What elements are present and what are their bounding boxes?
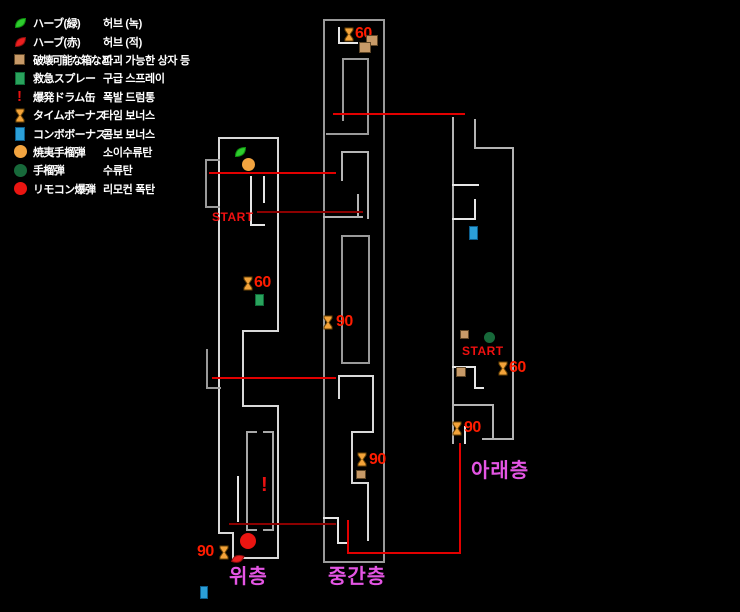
legend-item: 焼夷手榴弾 소이수류탄	[14, 143, 190, 161]
upper-floor-inner-room	[247, 432, 273, 530]
combo-bonus-icon	[200, 586, 208, 599]
legend-jp: ハーブ(赤)	[33, 34, 103, 50]
time-bonus-value: 60	[509, 360, 526, 376]
floor-label-middle: 중간층	[328, 567, 386, 587]
legend-kr: 폭발 드럼통	[103, 89, 155, 105]
legend-kr: 콤보 보너스	[103, 126, 155, 142]
middle-floor-outline	[324, 20, 384, 562]
first-aid-spray-icon	[255, 294, 264, 306]
time-bonus-icon	[243, 276, 253, 296]
breakable-box-icon	[14, 54, 33, 65]
incendiary-grenade-icon	[242, 158, 255, 171]
legend-item: コンボボーナス 콤보 보너스	[14, 124, 190, 142]
legend-jp: 爆発ドラム缶	[33, 89, 103, 105]
red-herb-icon	[14, 36, 33, 48]
legend-jp: コンボボーナス	[33, 126, 103, 142]
legend-kr: 파괴 가능한 상자 등	[103, 52, 190, 68]
start-label-lower: START	[462, 345, 504, 357]
legend-item: 破壊可能な箱など 파괴 가능한 상자 등	[14, 51, 190, 69]
legend-item: 救急スプレー 구급 스프레이	[14, 69, 190, 87]
remote-bomb-icon	[240, 533, 256, 549]
time-bonus-icon	[498, 361, 508, 381]
legend: ハーブ(緑) 허브 (녹) ハーブ(赤) 허브 (적) 破壊可能な箱など 파괴 …	[14, 14, 190, 198]
legend-item: リモコン爆弾 리모컨 폭탄	[14, 180, 190, 198]
explosive-drum-icon: !	[14, 89, 33, 104]
time-bonus-icon	[344, 27, 354, 47]
start-label-upper: START	[212, 211, 254, 223]
time-bonus-value: 90	[336, 314, 353, 330]
lower-floor-outline	[453, 120, 513, 439]
middle-floor-exit-passage	[324, 518, 348, 543]
middle-floor-room-b	[324, 152, 368, 218]
legend-kr: 허브 (적)	[103, 34, 142, 50]
incendiary-grenade-icon	[14, 145, 33, 158]
time-bonus-icon	[219, 545, 229, 565]
legend-kr: 타임 보너스	[103, 107, 155, 123]
green-herb-icon	[14, 17, 33, 29]
grenade-icon	[484, 332, 495, 343]
breakable-box-icon	[356, 470, 366, 479]
time-bonus-value: 90	[197, 544, 214, 560]
legend-jp: ハーブ(緑)	[33, 15, 103, 31]
legend-item: タイムボーナス 타임 보너스	[14, 106, 190, 124]
middle-floor-room-d	[339, 376, 373, 540]
legend-jp: リモコン爆弾	[33, 181, 103, 197]
legend-jp: 破壊可能な箱など	[33, 52, 103, 68]
upper-floor-alcove-top	[206, 160, 219, 207]
grenade-icon	[14, 164, 33, 177]
time-bonus-value: 60	[254, 275, 271, 291]
mercenaries-map-guide: ハーブ(緑) 허브 (녹) ハーブ(赤) 허브 (적) 破壊可能な箱など 파괴 …	[0, 0, 740, 612]
middle-floor-room-c	[342, 236, 369, 363]
legend-jp: 救急スプレー	[33, 70, 103, 86]
breakable-box-icon	[456, 367, 466, 377]
legend-kr: 허브 (녹)	[103, 15, 142, 31]
breakable-box-icon	[460, 330, 469, 339]
legend-kr: 구급 스프레이	[103, 70, 165, 86]
breakable-box-icon	[359, 42, 371, 53]
time-bonus-icon	[357, 452, 367, 472]
legend-item: ハーブ(赤) 허브 (적)	[14, 32, 190, 50]
combo-bonus-icon	[469, 226, 478, 240]
time-bonus-icon	[452, 421, 462, 441]
legend-jp: 焼夷手榴弾	[33, 144, 103, 160]
legend-item: 手榴弾 수류탄	[14, 161, 190, 179]
time-bonus-icon	[323, 315, 333, 335]
legend-jp: タイムボーナス	[33, 107, 103, 123]
time-bonus-value: 90	[464, 420, 481, 436]
legend-jp: 手榴弾	[33, 162, 103, 178]
legend-kr: 리모컨 폭탄	[103, 181, 155, 197]
remote-bomb-icon	[14, 182, 33, 195]
legend-item: ハーブ(緑) 허브 (녹)	[14, 14, 190, 32]
time-bonus-value: 90	[369, 452, 386, 468]
legend-item: ! 爆発ドラム缶 폭발 드럼통	[14, 88, 190, 106]
legend-kr: 소이수류탄	[103, 144, 152, 160]
middle-floor-room-a	[327, 59, 368, 134]
combo-bonus-icon	[14, 127, 33, 141]
upper-floor-outline	[219, 138, 278, 558]
floor-label-lower: 아래층	[471, 461, 529, 481]
floor-label-upper: 위층	[229, 567, 268, 587]
explosive-drum-icon: !	[261, 475, 268, 495]
legend-kr: 수류탄	[103, 162, 132, 178]
time-bonus-icon	[14, 108, 33, 123]
first-aid-spray-icon	[14, 72, 33, 85]
